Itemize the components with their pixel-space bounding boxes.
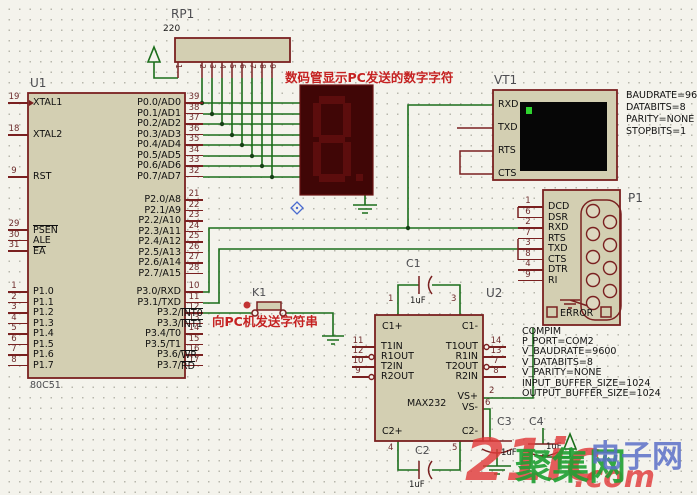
pin-number: 28 xyxy=(184,264,204,273)
pin-label: RXD xyxy=(548,223,568,233)
c1-ref: C1 xyxy=(406,258,421,270)
watermark-blue-text: 电子网 xyxy=(590,441,683,474)
pin-number: 2 xyxy=(4,293,24,302)
rxd-net-wire xyxy=(203,228,518,292)
k1-ground-icon xyxy=(322,336,344,344)
p1-settings-line: COMPIM xyxy=(522,327,561,337)
display-ground-icon xyxy=(353,205,377,213)
pin-label: P2.0/A8 xyxy=(96,195,181,205)
pin-number: 8 xyxy=(4,356,24,365)
pin-number: 6 xyxy=(485,399,490,408)
pin-label: P2.7/A15 xyxy=(96,269,181,279)
pin-label: P0.3/AD3 xyxy=(96,130,181,140)
pin-number: 19 xyxy=(4,93,24,102)
rp1-power-arrow-icon xyxy=(148,47,160,62)
pin-number: 30 xyxy=(4,231,24,240)
rp1-pin-number: 5 xyxy=(228,64,236,69)
vt1-settings-line: STOPBITS=1 xyxy=(626,127,686,137)
k1-probe-dot xyxy=(244,302,251,309)
pin-number: 7 xyxy=(487,357,505,366)
vt1-pin-leads xyxy=(457,128,493,174)
p1-ref: P1 xyxy=(628,192,643,205)
pin-number: 18 xyxy=(4,125,24,134)
p1-settings-line: OUTPUT_BUFFER_SIZE=1024 xyxy=(522,389,661,399)
pin-number: 26 xyxy=(184,243,204,252)
pin-label: P0.6/AD6 xyxy=(96,161,181,171)
pin-number: 9 xyxy=(349,367,367,376)
pin-label: P0.0/AD0 xyxy=(96,98,181,108)
c1-capacitor-icon[interactable] xyxy=(419,276,432,294)
rp1-ref: RP1 xyxy=(171,8,194,21)
pin-number: 13 xyxy=(487,347,505,356)
p1-error-label: ERROR xyxy=(560,309,593,319)
c2-capacitor-icon[interactable] xyxy=(419,461,432,479)
pin-label: R2IN xyxy=(400,372,478,382)
pin-label: P0.7/AD7 xyxy=(96,172,181,182)
pin-label: P3.0/RXD xyxy=(96,287,181,297)
pin-label: DCD xyxy=(548,202,569,212)
pin-label: P2.3/A11 xyxy=(96,227,181,237)
pin-number: 8 xyxy=(519,250,537,259)
pin-label: P1.2 xyxy=(33,308,54,318)
u2-r2out-bubble xyxy=(369,375,374,380)
u1-part: 80C51 xyxy=(30,381,61,391)
pin-number: 2 xyxy=(489,387,494,396)
pin-label: P0.2/AD2 xyxy=(96,119,181,129)
pin-number: 27 xyxy=(184,253,204,262)
pin-lead xyxy=(352,376,369,378)
pin-number: 5 xyxy=(4,324,24,333)
pin-label: P1.6 xyxy=(33,350,54,360)
pin-label: ALE xyxy=(33,236,51,246)
pin-number: 9 xyxy=(4,167,24,176)
pin-number: 31 xyxy=(4,241,24,250)
u1-ref: U1 xyxy=(30,77,46,90)
pin-number: 35 xyxy=(184,135,204,144)
vt1-cursor xyxy=(526,107,532,114)
rp1-pin-number: 8 xyxy=(258,64,266,69)
pin-label: CTS xyxy=(548,255,566,265)
pin-label: P3.1/TXD xyxy=(96,298,181,308)
c2-ref: C2 xyxy=(415,445,430,457)
p1-settings-line: V_BAUDRATE=9600 xyxy=(522,347,616,357)
u2-r1out-bubble xyxy=(369,355,374,360)
pin-label: P3.7/RD xyxy=(96,361,181,371)
pin-label: P0.5/AD5 xyxy=(96,151,181,161)
pin-label: XTAL2 xyxy=(33,130,62,140)
pin-number: 2 xyxy=(519,218,537,227)
pin-label: P3.3/INT1 xyxy=(96,319,181,329)
pin-label: RST xyxy=(33,172,51,182)
pin-number: 10 xyxy=(349,357,367,366)
pin-number: 10 xyxy=(184,282,204,291)
vt1-rxd-tap-wire xyxy=(408,105,493,228)
pin-number: 7 xyxy=(4,345,24,354)
pin-lead xyxy=(185,273,203,275)
rp1-body[interactable] xyxy=(175,38,290,62)
pin-number: 22 xyxy=(184,201,204,210)
pin-number: 23 xyxy=(184,211,204,220)
pin-number: 14 xyxy=(487,337,505,346)
rp1-pin-number: 1 xyxy=(174,64,182,69)
pin-label: RTS xyxy=(498,146,516,156)
pin-number: 1 xyxy=(4,282,24,291)
pin-label: TXD xyxy=(548,244,568,254)
pin-label: RTS xyxy=(548,234,566,244)
pin-label: CTS xyxy=(498,169,516,179)
pin-label: DSR xyxy=(548,213,568,223)
pin-number: 33 xyxy=(184,156,204,165)
pin-number: 4 xyxy=(519,260,537,269)
pin-label: P2.4/A12 xyxy=(96,237,181,247)
k1-ref: K1 xyxy=(252,287,266,299)
pin-number: 39 xyxy=(184,93,204,102)
vt1-settings-line: PARITY=NONE xyxy=(626,115,694,125)
rp1-pin-number: 7 xyxy=(248,64,256,69)
send-annotation: 向PC机发送字符串 xyxy=(212,315,318,328)
pin-number: 37 xyxy=(184,114,204,123)
rp1-value: 220 xyxy=(163,25,180,34)
pin-number: 12 xyxy=(349,347,367,356)
c1-value: 1uF xyxy=(410,297,426,306)
pin-number: 3 xyxy=(451,295,456,304)
rp1-pin-number: 2 xyxy=(198,64,206,69)
pin-number: 3 xyxy=(4,303,24,312)
pin-number: 34 xyxy=(184,146,204,155)
pin-lead xyxy=(8,250,28,252)
pin-number: 6 xyxy=(519,208,537,217)
pin-label: P3.5/T1 xyxy=(96,340,181,350)
pin-number: 11 xyxy=(349,337,367,346)
p1-settings-line: V_PARITY=NONE xyxy=(522,368,602,378)
vt1-ref: VT1 xyxy=(494,74,517,87)
pin-label: C1- xyxy=(400,322,478,332)
rp1-pin-number: 3 xyxy=(208,64,216,69)
pin-number: 1 xyxy=(519,197,537,206)
pin-number: 9 xyxy=(519,271,537,280)
pin-label: P3.2/INT0 xyxy=(96,308,181,318)
pin-lead xyxy=(518,280,543,282)
pin-number: 21 xyxy=(184,190,204,199)
pin-label: P1.7 xyxy=(33,361,54,371)
p1-settings-line: INPUT_BUFFER_SIZE=1024 xyxy=(522,379,650,389)
vt1-settings-line: DATABITS=8 xyxy=(626,103,686,113)
txd-net-wire xyxy=(203,249,518,303)
origin-marker-icon xyxy=(291,202,303,214)
pin-label: P1.5 xyxy=(33,340,54,350)
pin-label: P2.2/A10 xyxy=(96,216,181,226)
pin-number: 14 xyxy=(184,324,204,333)
display-annotation: 数码管显示PC发送的数字字符 xyxy=(285,71,453,84)
pin-label: RI xyxy=(548,276,557,286)
pin-number: 1 xyxy=(388,295,393,304)
rp1-pin-number: 9 xyxy=(268,64,276,69)
pin-number: 32 xyxy=(184,167,204,176)
seven-segment-display[interactable] xyxy=(300,85,373,195)
rp1-pin-number: 6 xyxy=(238,64,246,69)
pin-lead xyxy=(8,134,28,136)
pin-lead xyxy=(483,376,506,378)
pin-number: 3 xyxy=(519,239,537,248)
pin-number: 4 xyxy=(4,314,24,323)
pin-label: TXD xyxy=(498,123,518,133)
pin-number: 38 xyxy=(184,104,204,113)
pin-number: 15 xyxy=(184,335,204,344)
pin-label: XTAL1 xyxy=(33,98,62,108)
pin-number: 6 xyxy=(4,335,24,344)
c2-value: 1uF xyxy=(409,481,425,490)
pin-label: P1.0 xyxy=(33,287,54,297)
vt1-settings-line: BAUDRATE=9600 xyxy=(626,91,697,101)
pin-number: 36 xyxy=(184,125,204,134)
pin-label: P3.4/T0 xyxy=(96,329,181,339)
pin-label: P3.6/WR xyxy=(96,350,181,360)
pin-lead xyxy=(8,176,28,178)
pin-label: P1.4 xyxy=(33,329,54,339)
pin-number: 29 xyxy=(4,220,24,229)
pin-label: P0.4/AD4 xyxy=(96,140,181,150)
pin-number: 11 xyxy=(184,293,204,302)
vt1-screen xyxy=(520,102,607,171)
pin-label: P1.3 xyxy=(33,319,54,329)
pin-label: DTR xyxy=(548,265,568,275)
pin-label: P2.6/A14 xyxy=(96,258,181,268)
pin-number: 25 xyxy=(184,232,204,241)
pin-label: P2.1/A9 xyxy=(96,206,181,216)
pin-lead xyxy=(185,176,203,178)
pin-label: RXD xyxy=(498,100,518,110)
pin-lead xyxy=(8,365,28,367)
pin-label: P0.1/AD1 xyxy=(96,109,181,119)
u2-ref: U2 xyxy=(486,287,502,300)
pin-number: 7 xyxy=(519,229,537,238)
pin-label: P2.5/A13 xyxy=(96,248,181,258)
pin-label: VS- xyxy=(400,403,478,413)
pin-label: VS+ xyxy=(400,392,478,402)
schematic-canvas: U1 80C51 RP1 220 VT1 P1 U2 MAX232 K1 ERR… xyxy=(0,0,697,495)
pin-label: P1.1 xyxy=(33,298,54,308)
pin-number: 4 xyxy=(388,444,393,453)
pin-number: 24 xyxy=(184,222,204,231)
pin-lead xyxy=(8,102,28,104)
rp1-drop-wires xyxy=(202,78,272,177)
pin-number: 8 xyxy=(487,367,505,376)
rp1-pin-number: 4 xyxy=(218,64,226,69)
pin-number: 5 xyxy=(452,444,457,453)
